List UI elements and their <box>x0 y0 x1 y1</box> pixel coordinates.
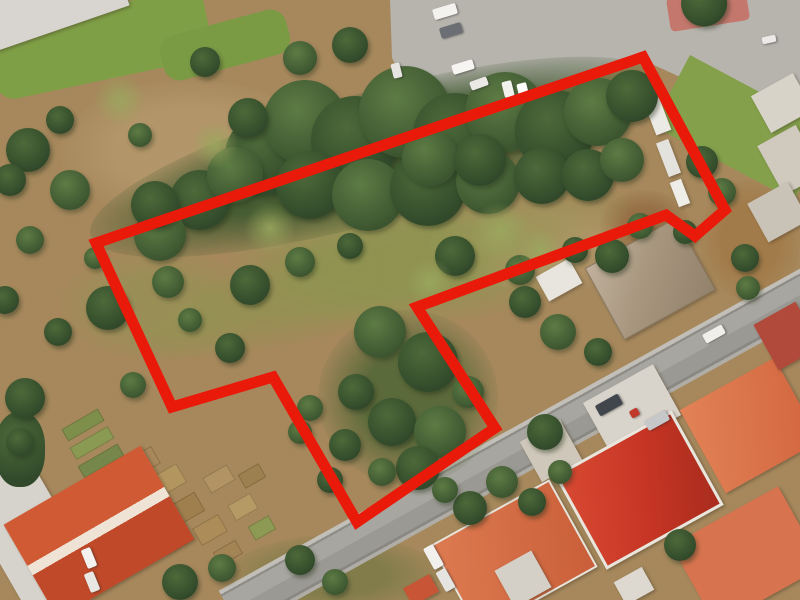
tree <box>540 314 576 350</box>
tree <box>606 70 658 122</box>
tree <box>94 74 146 126</box>
tree <box>322 569 348 595</box>
tree <box>452 376 484 408</box>
garden-plot <box>238 463 267 489</box>
tree <box>354 306 406 358</box>
tree <box>731 244 759 272</box>
garden-plot <box>248 515 277 541</box>
tree <box>398 332 458 392</box>
tree <box>518 228 562 272</box>
garden-plot <box>227 493 259 522</box>
tree <box>84 247 106 269</box>
tree <box>453 491 487 525</box>
tree <box>5 378 45 418</box>
tree <box>230 265 270 305</box>
tree <box>44 318 72 346</box>
tree <box>664 529 696 561</box>
tree <box>562 237 588 263</box>
aerial-photo <box>0 0 800 600</box>
tree <box>152 266 184 298</box>
tree <box>162 564 198 600</box>
tree <box>548 460 572 484</box>
building-white-small-2 <box>614 567 655 600</box>
tree <box>406 258 454 306</box>
tree <box>627 213 653 239</box>
tree <box>518 488 546 516</box>
tree <box>337 233 363 259</box>
tree <box>673 220 697 244</box>
tree <box>208 554 236 582</box>
tree <box>686 146 718 178</box>
garden-plot <box>202 464 235 494</box>
tree <box>454 134 506 186</box>
tree <box>120 372 146 398</box>
tree <box>16 226 44 254</box>
tree <box>86 286 130 330</box>
tree <box>368 398 416 446</box>
tree <box>329 429 361 461</box>
tree <box>285 545 315 575</box>
tree <box>244 202 296 254</box>
tree <box>0 164 26 196</box>
tree <box>0 286 19 314</box>
tree <box>584 338 612 366</box>
tree <box>215 333 245 363</box>
tree <box>297 395 323 421</box>
tree <box>178 308 202 332</box>
tree <box>317 467 343 493</box>
tree <box>332 27 368 63</box>
tree <box>708 178 736 206</box>
tree <box>595 239 629 273</box>
tree <box>338 374 374 410</box>
tree <box>509 286 541 318</box>
tree <box>527 414 563 450</box>
tree <box>46 106 74 134</box>
tree <box>6 428 34 456</box>
tree <box>285 247 315 277</box>
tree <box>128 123 152 147</box>
tree <box>190 47 220 77</box>
tree <box>736 276 760 300</box>
tree <box>368 458 396 486</box>
tree <box>288 420 312 444</box>
tree <box>191 121 239 169</box>
tree <box>432 477 458 503</box>
tree <box>131 181 179 229</box>
tree <box>50 170 90 210</box>
trailer-2 <box>656 139 681 177</box>
garden-plot <box>192 514 228 546</box>
tree <box>283 41 317 75</box>
tree <box>486 466 518 498</box>
tree <box>600 138 644 182</box>
tree <box>402 130 458 186</box>
